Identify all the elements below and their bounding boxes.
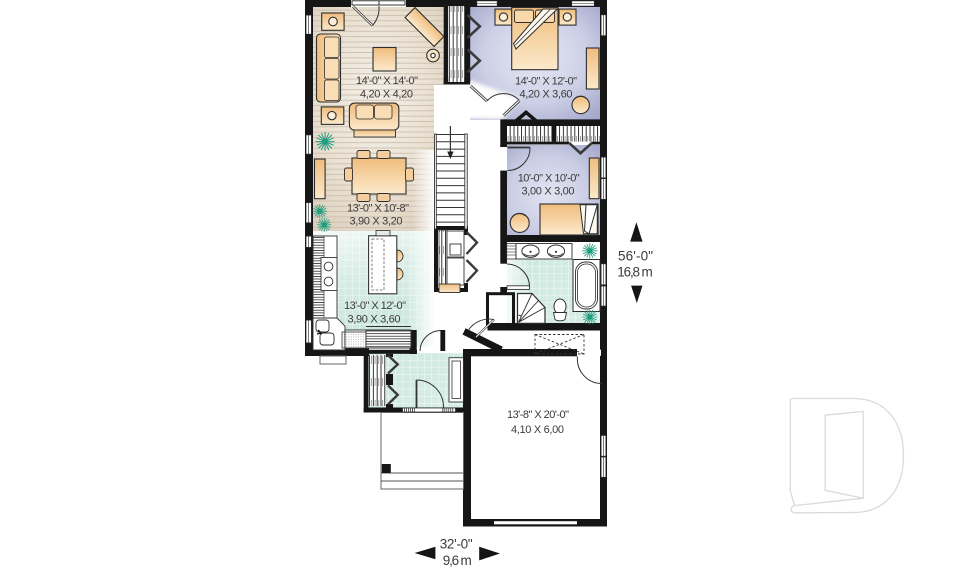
svg-text:3,00 X 3,00: 3,00 X 3,00	[522, 186, 575, 198]
svg-text:3,90 X 3,20: 3,90 X 3,20	[350, 216, 403, 228]
svg-text:3,90 X 3,60: 3,90 X 3,60	[348, 313, 401, 325]
svg-text:14'-0" X 14'-0": 14'-0" X 14'-0"	[356, 75, 418, 87]
svg-text:32'-0": 32'-0"	[440, 537, 473, 552]
svg-text:13'-0" X 10'-8": 13'-0" X 10'-8"	[347, 203, 409, 215]
svg-text:4,10 X 6,00: 4,10 X 6,00	[511, 424, 564, 436]
svg-text:9,6 m: 9,6 m	[443, 553, 472, 568]
svg-text:13'-8" X 20'-0": 13'-8" X 20'-0"	[507, 409, 569, 421]
svg-text:56'-0": 56'-0"	[618, 249, 653, 264]
svg-text:14'-0" X 12'-0": 14'-0" X 12'-0"	[515, 76, 577, 88]
svg-text:13'-0" X 12'-0": 13'-0" X 12'-0"	[344, 300, 406, 312]
svg-text:10'-0" X 10'-0": 10'-0" X 10'-0"	[518, 173, 580, 185]
svg-text:4,20 X 3,60: 4,20 X 3,60	[520, 89, 573, 101]
svg-text:4,20 X 4,20: 4,20 X 4,20	[360, 89, 413, 101]
svg-text:16,8 m: 16,8 m	[617, 265, 653, 280]
